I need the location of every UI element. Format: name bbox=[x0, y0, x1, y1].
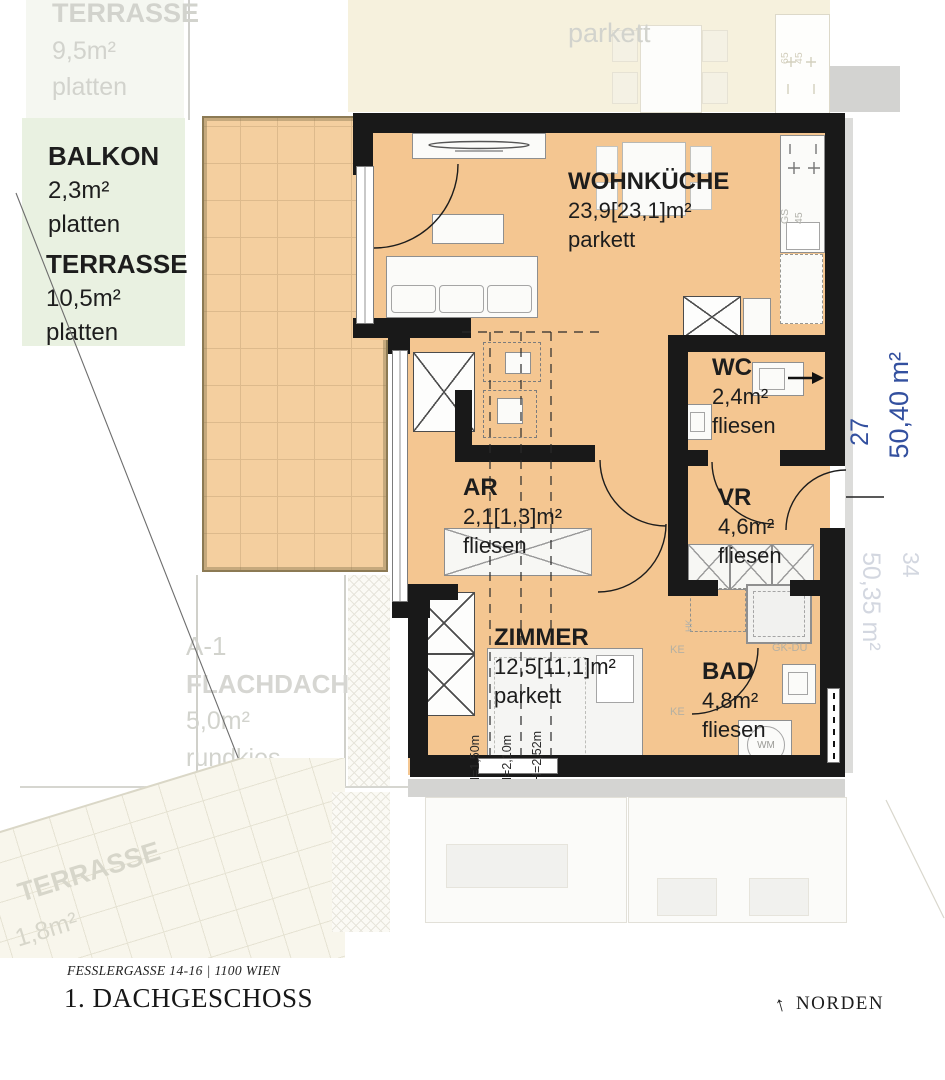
neighbor-stove-depth-label: 65 bbox=[779, 52, 791, 64]
unit-below-area: 50,35 m² bbox=[856, 552, 885, 651]
kitchen-sink bbox=[786, 222, 820, 250]
dishwasher-width-label: 45 bbox=[793, 212, 805, 224]
bad-window bbox=[827, 688, 840, 763]
coffee-table bbox=[432, 214, 504, 244]
shower-label: GK-DU bbox=[772, 642, 807, 654]
neighbor-chair bbox=[612, 72, 638, 104]
neighbor-terrace-bottom: TERRASSE 1,8m² bbox=[0, 758, 345, 958]
roof-hatch-strip bbox=[332, 792, 390, 932]
shaft-box bbox=[683, 296, 741, 338]
terrace-door-window bbox=[356, 166, 374, 324]
storage-shelf bbox=[497, 398, 523, 424]
wall bbox=[668, 450, 708, 466]
wall bbox=[668, 466, 688, 596]
unit-number: 27 bbox=[846, 418, 875, 446]
neighbor-stove-width-label: 45 bbox=[793, 52, 805, 64]
dishwasher-label: GS bbox=[779, 209, 791, 224]
wall bbox=[408, 598, 428, 758]
neighbor-terrace-top-label: TERRASSE 9,5m² platten bbox=[52, 0, 199, 106]
hall-window-band bbox=[392, 350, 408, 602]
neighbor-terrace-bottom-area: 1,8m² bbox=[12, 907, 82, 953]
wall bbox=[668, 335, 845, 352]
ar-label: AR 2,1[1,3]m² fliesen bbox=[463, 472, 562, 560]
sideboard bbox=[412, 133, 546, 159]
kitchen-unit-label: KE bbox=[670, 706, 685, 718]
wall bbox=[353, 113, 845, 133]
floor-plan: 65 45 parkett TERRASSE 9,5m² platten BAL… bbox=[0, 0, 945, 1080]
neighbor-chair bbox=[702, 72, 728, 104]
zimmer-window bbox=[478, 758, 558, 774]
kitchen-lower-cabinets bbox=[780, 254, 823, 324]
terrasse-label: TERRASSE 10,5m² platten bbox=[46, 246, 188, 350]
zimmer-label: ZIMMER 12,5[11,1]m² parkett bbox=[494, 622, 616, 710]
neighbor-top-wall-strip bbox=[828, 66, 900, 112]
unit-below-number: 34 bbox=[897, 552, 924, 578]
wall bbox=[825, 133, 845, 465]
kitchen-unit-label: KE bbox=[670, 644, 685, 656]
radiator-label: HK bbox=[684, 619, 694, 632]
neighbor-chair bbox=[702, 30, 728, 62]
north-label: NORDEN bbox=[796, 993, 884, 1014]
wohnkueche-label: WOHNKÜCHE 23,9[23,1]m² parkett bbox=[568, 166, 729, 254]
wall bbox=[408, 584, 458, 600]
neighbor-room-below bbox=[628, 797, 847, 923]
wc-label: WC 2,4m² fliesen bbox=[712, 352, 776, 440]
footer-address: FESSLERGASSE 14-16 | 1100 WIEN bbox=[67, 963, 280, 979]
bad-label: BAD 4,8m² fliesen bbox=[702, 656, 766, 744]
neighbor-bottom-band bbox=[408, 779, 845, 797]
unit-total-area: 50,40 m² bbox=[884, 352, 915, 459]
kitchen-end-cabinet bbox=[743, 298, 771, 338]
sofa bbox=[386, 256, 538, 318]
storage-shelf bbox=[505, 352, 531, 374]
neighbor-floor-label: parkett bbox=[568, 16, 651, 51]
page-title: 1. DACHGESCHOSS bbox=[64, 983, 313, 1014]
neighbor-room-below bbox=[425, 797, 627, 923]
flat-roof-label: A-1 FLACHDACH 5,0m² rundkies bbox=[186, 628, 349, 776]
balkon-label: BALKON 2,3m² platten bbox=[48, 138, 159, 242]
wc-washbasin bbox=[684, 404, 712, 440]
wall bbox=[668, 340, 688, 468]
neighbor-terrace-bottom-name: TERRASSE bbox=[14, 836, 164, 909]
bad-washbasin bbox=[782, 664, 816, 704]
wall bbox=[790, 580, 845, 596]
north-indicator: ↑ NORDEN bbox=[775, 992, 884, 1017]
wall bbox=[455, 445, 595, 462]
neighbor-terrace-bottom-clip: TERRASSE 1,8m² bbox=[0, 758, 345, 958]
roof-hatch-strip bbox=[348, 575, 390, 787]
wall bbox=[455, 390, 472, 462]
vr-label: VR 4,6m² fliesen bbox=[718, 482, 782, 570]
wall bbox=[780, 450, 845, 466]
wall bbox=[668, 580, 718, 596]
height-line-label: H=2,52m bbox=[530, 731, 544, 782]
neighbor-kitchen-counter bbox=[775, 14, 830, 114]
north-arrow-icon: ↑ bbox=[772, 991, 789, 1018]
